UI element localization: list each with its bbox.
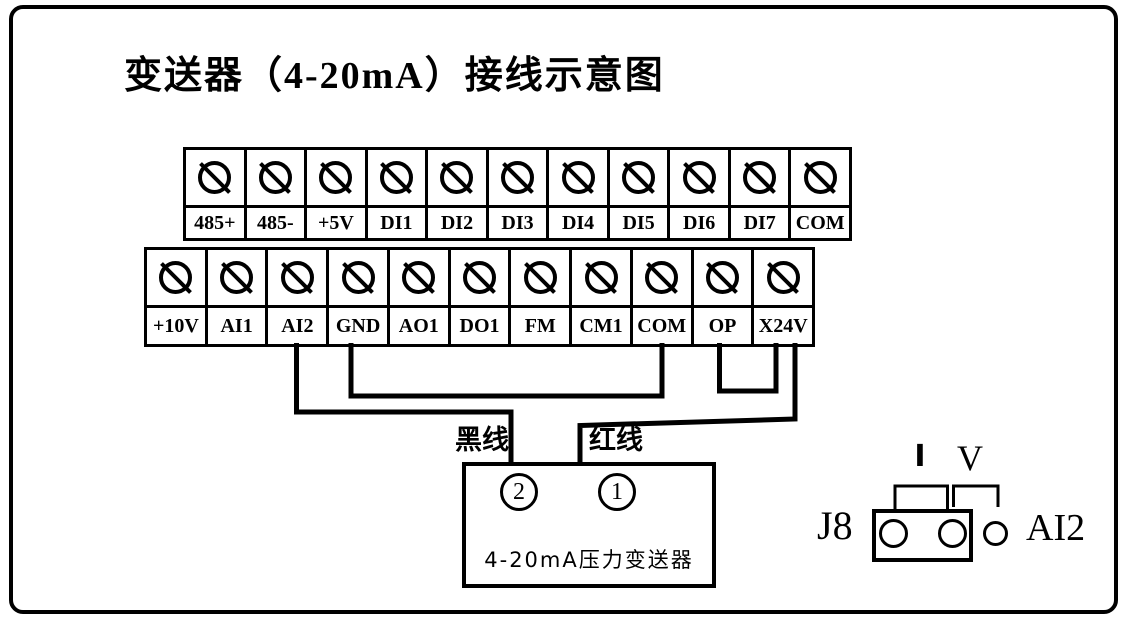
- terminal-cell: FM: [511, 250, 572, 344]
- screw-terminal-icon: [198, 161, 231, 194]
- j8-pin-2-icon: [938, 519, 967, 548]
- terminal-cell: AI1: [208, 250, 269, 344]
- current-mode-mark: I: [913, 442, 927, 472]
- j8-pin-3-icon: [983, 521, 1008, 546]
- j8-connector-label: J8: [817, 506, 853, 546]
- diagram-title: 变送器（4-20mA）接线示意图: [124, 44, 665, 99]
- terminal-label: AI2: [268, 308, 326, 344]
- terminal-strip-bottom: +10V AI1 AI2 GND AO1 DO1 FM CM1 COM OP X…: [144, 247, 815, 347]
- terminal-cell: DI4: [549, 150, 610, 238]
- wiring-diagram: 变送器（4-20mA）接线示意图 485+ 485- +5V DI1 DI2 D…: [0, 0, 1125, 624]
- terminal-label: DO1: [451, 308, 509, 344]
- screw-terminal-icon: [706, 261, 739, 294]
- terminal-label: AI1: [208, 308, 266, 344]
- screw-terminal-icon: [281, 261, 314, 294]
- screw-terminal-icon: [342, 261, 375, 294]
- terminal-label: +10V: [147, 308, 205, 344]
- transmitter-caption: 4-20mA压力变送器: [466, 544, 712, 574]
- terminal-cell: X24V: [754, 250, 812, 344]
- screw-terminal-icon: [524, 261, 557, 294]
- red-wire-label: 红线: [589, 427, 643, 454]
- terminal-cell: 485+: [186, 150, 247, 238]
- terminal-cell: DI5: [610, 150, 671, 238]
- terminal-label: DI2: [428, 208, 486, 238]
- terminal-cell: 485-: [247, 150, 308, 238]
- terminal-label: GND: [329, 308, 387, 344]
- terminal-cell: COM: [633, 250, 694, 344]
- screw-terminal-icon: [562, 161, 595, 194]
- screw-terminal-icon: [402, 261, 435, 294]
- terminal-cell: AO1: [390, 250, 451, 344]
- terminal-cell: DI3: [489, 150, 550, 238]
- terminal-label: 485+: [186, 208, 244, 238]
- terminal-cell: DO1: [451, 250, 512, 344]
- terminal-label: DI1: [368, 208, 426, 238]
- terminal-strip-top: 485+ 485- +5V DI1 DI2 DI3 DI4 DI5 DI6 DI…: [183, 147, 852, 241]
- terminal-cell: DI1: [368, 150, 429, 238]
- terminal-label: DI5: [610, 208, 668, 238]
- terminal-label: DI6: [670, 208, 728, 238]
- screw-terminal-icon: [159, 261, 192, 294]
- screw-terminal-icon: [767, 261, 800, 294]
- terminal-cell: COM: [791, 150, 849, 238]
- terminal-label: COM: [633, 308, 691, 344]
- terminal-label: DI4: [549, 208, 607, 238]
- terminal-label: 485-: [247, 208, 305, 238]
- screw-terminal-icon: [259, 161, 292, 194]
- terminal-cell: +5V: [307, 150, 368, 238]
- terminal-cell: DI2: [428, 150, 489, 238]
- screw-terminal-icon: [380, 161, 413, 194]
- screw-terminal-icon: [683, 161, 716, 194]
- terminal-label: AO1: [390, 308, 448, 344]
- terminal-label: COM: [791, 208, 849, 238]
- terminal-label: DI7: [731, 208, 789, 238]
- screw-terminal-icon: [501, 161, 534, 194]
- screw-terminal-icon: [463, 261, 496, 294]
- transmitter-box: 2 1 4-20mA压力变送器: [462, 462, 716, 588]
- terminal-cell: DI6: [670, 150, 731, 238]
- screw-terminal-icon: [804, 161, 837, 194]
- terminal-label: DI3: [489, 208, 547, 238]
- voltage-mode-mark: V: [957, 440, 983, 476]
- screw-terminal-icon: [585, 261, 618, 294]
- screw-terminal-icon: [220, 261, 253, 294]
- screw-terminal-icon: [622, 161, 655, 194]
- transmitter-terminal-2: 2: [500, 473, 538, 511]
- terminal-label: X24V: [754, 308, 812, 344]
- terminal-cell: +10V: [147, 250, 208, 344]
- terminal-label: +5V: [307, 208, 365, 238]
- terminal-cell: DI7: [731, 150, 792, 238]
- screw-terminal-icon: [440, 161, 473, 194]
- screw-terminal-icon: [743, 161, 776, 194]
- screw-terminal-icon: [645, 261, 678, 294]
- transmitter-terminal-1: 1: [598, 473, 636, 511]
- terminal-label: FM: [511, 308, 569, 344]
- j8-channel-label: AI2: [1026, 509, 1085, 547]
- terminal-cell: GND: [329, 250, 390, 344]
- black-wire-label: 黑线: [455, 427, 509, 454]
- j8-pin-1-icon: [879, 519, 908, 548]
- terminal-label: OP: [694, 308, 752, 344]
- terminal-cell: AI2: [268, 250, 329, 344]
- terminal-cell: OP: [694, 250, 755, 344]
- terminal-cell: CM1: [572, 250, 633, 344]
- screw-terminal-icon: [319, 161, 352, 194]
- terminal-label: CM1: [572, 308, 630, 344]
